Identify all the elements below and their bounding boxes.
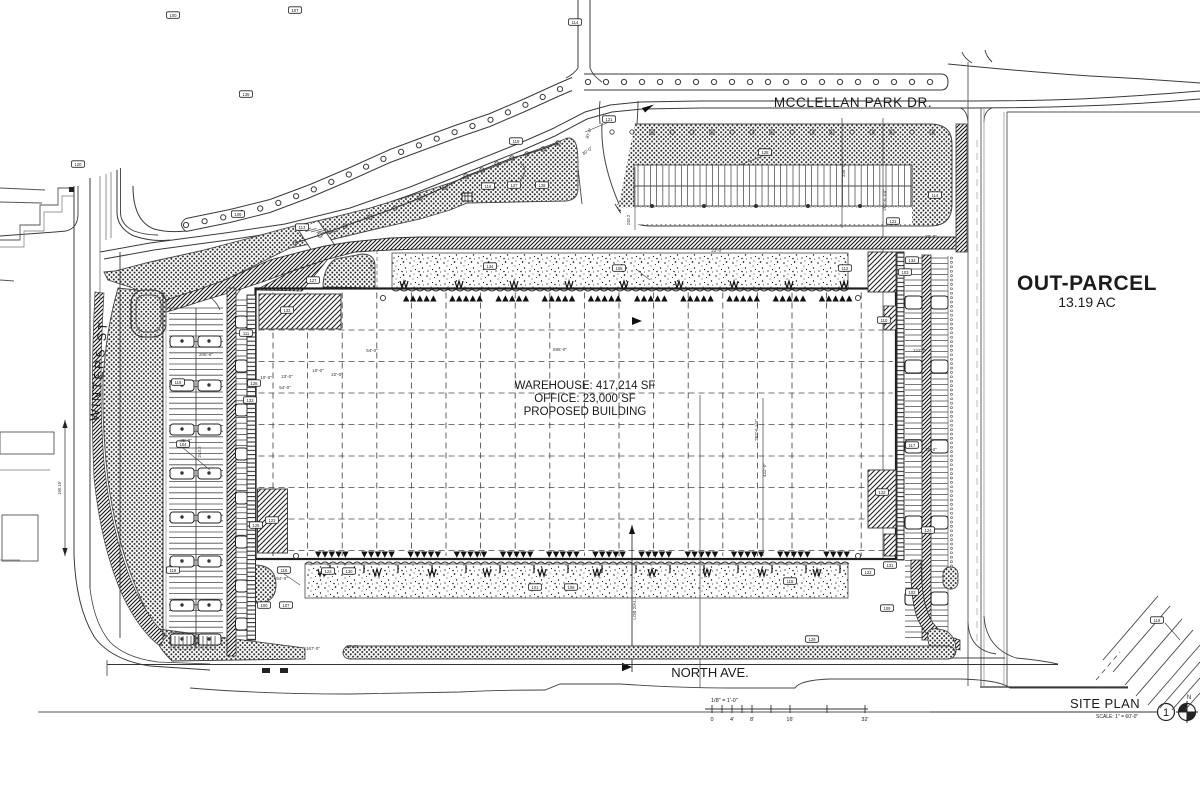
svg-text:WAREHOUSE: 417,214 SF: WAREHOUSE: 417,214 SF [515,380,656,392]
svg-text:23'-0": 23'-0" [281,374,293,379]
svg-text:109: 109 [884,606,892,611]
svg-text:248.2: 248.2 [626,214,631,225]
svg-text:32': 32' [861,717,868,723]
svg-text:PROPOSED BUILDING: PROPOSED BUILDING [524,406,647,418]
svg-text:123: 123 [325,569,333,574]
svg-text:122: 122 [865,570,873,575]
svg-text:252'-6 1/4": 252'-6 1/4" [754,419,759,441]
svg-text:SITE PLAN: SITE PLAN [1070,696,1140,711]
svg-text:422'-0": 422'-0" [762,463,767,477]
svg-text:116: 116 [281,568,288,573]
svg-text:129: 129 [809,637,817,642]
svg-text:16': 16' [786,717,793,723]
svg-text:124: 124 [925,528,933,533]
svg-text:100: 100 [170,13,178,18]
svg-text:128: 128 [762,150,770,155]
svg-text:122'-0": 122'-0" [913,348,927,353]
svg-text:119: 119 [1154,618,1161,623]
svg-text:108: 108 [568,585,576,590]
svg-text:122: 122 [879,490,887,495]
svg-text:102: 102 [909,590,917,595]
svg-text:112: 112 [842,266,849,271]
svg-text:123: 123 [269,518,277,523]
svg-text:1/8" = 1'-0": 1/8" = 1'-0" [711,698,738,704]
svg-text:117: 117 [909,443,916,448]
svg-text:695'-0": 695'-0" [553,347,567,352]
svg-text:121: 121 [606,117,614,122]
svg-text:30'-0": 30'-0" [925,447,937,452]
svg-text:114: 114 [932,193,939,198]
svg-text:100: 100 [261,603,269,608]
svg-text:252'-6 1/4": 252'-6 1/4" [882,189,887,211]
svg-text:25'-0": 25'-0" [346,644,358,649]
svg-text:115: 115 [787,579,794,584]
svg-text:243.2: 243.2 [197,446,202,458]
svg-text:131: 131 [887,563,895,568]
svg-text:114: 114 [572,20,579,25]
svg-text:128: 128 [539,183,547,188]
svg-text:54'-0": 54'-0" [366,348,378,353]
svg-text:10'-0": 10'-0" [260,375,272,380]
svg-text:25'-0": 25'-0" [180,438,192,443]
svg-text:113: 113 [299,225,306,230]
svg-text:119: 119 [513,139,520,144]
svg-text:206'-6": 206'-6" [199,352,213,357]
svg-text:116: 116 [485,184,492,189]
svg-text:125: 125 [253,523,261,528]
svg-text:SCALE: 1" = 60'-0": SCALE: 1" = 60'-0" [1096,714,1138,720]
svg-text:22'-0": 22'-0" [711,248,723,253]
svg-text:22'-0": 22'-0" [331,372,343,377]
svg-text:127: 127 [310,278,318,283]
svg-text:105: 105 [616,266,624,271]
svg-text:54'-0": 54'-0" [279,385,291,390]
svg-text:126: 126 [251,381,259,386]
svg-text:167'-0": 167'-0" [306,646,320,651]
svg-text:132: 132 [909,258,917,263]
svg-text:1: 1 [1163,707,1169,719]
svg-text:121: 121 [890,219,898,224]
svg-text:54'-0": 54'-0" [276,576,288,581]
svg-text:107: 107 [292,8,300,13]
svg-text:120: 120 [75,162,83,167]
svg-text:127: 127 [511,183,519,188]
svg-text:133: 133 [247,398,255,403]
svg-text:118: 118 [170,568,177,573]
svg-text:OUT-PARCEL: OUT-PARCEL [1017,272,1157,295]
svg-text:111: 111 [243,331,250,336]
svg-text:0: 0 [710,717,713,723]
svg-text:MCCLELLAN PARK DR.: MCCLELLAN PARK DR. [774,95,932,110]
svg-text:13.19 AC: 13.19 AC [1058,294,1116,310]
svg-text:NORTH AVE.: NORTH AVE. [671,665,749,680]
svg-text:336'-0": 336'-0" [841,163,846,177]
svg-text:110: 110 [881,318,888,323]
svg-text:133: 133 [284,308,292,313]
svg-text:101: 101 [532,585,540,590]
svg-text:106: 106 [235,212,243,217]
svg-text:30'-0": 30'-0" [925,234,937,239]
svg-text:N: N [1187,695,1191,701]
svg-text:130: 130 [346,569,354,574]
svg-text:8': 8' [750,717,754,723]
svg-text:103: 103 [902,270,910,275]
svg-text:4': 4' [730,717,734,723]
svg-text:OFFICE: 23,000 SF: OFFICE: 23,000 SF [534,393,636,405]
svg-text:134: 134 [487,264,495,269]
svg-text:135: 135 [243,92,251,97]
svg-text:119: 119 [175,380,182,385]
svg-text:190.19': 190.19' [57,481,62,495]
svg-text:22'-0": 22'-0" [369,258,374,269]
svg-text:10'-0": 10'-0" [312,368,324,373]
svg-text:107: 107 [283,603,291,608]
svg-text:LOB 2/A1.1: LOB 2/A1.1 [632,596,637,620]
